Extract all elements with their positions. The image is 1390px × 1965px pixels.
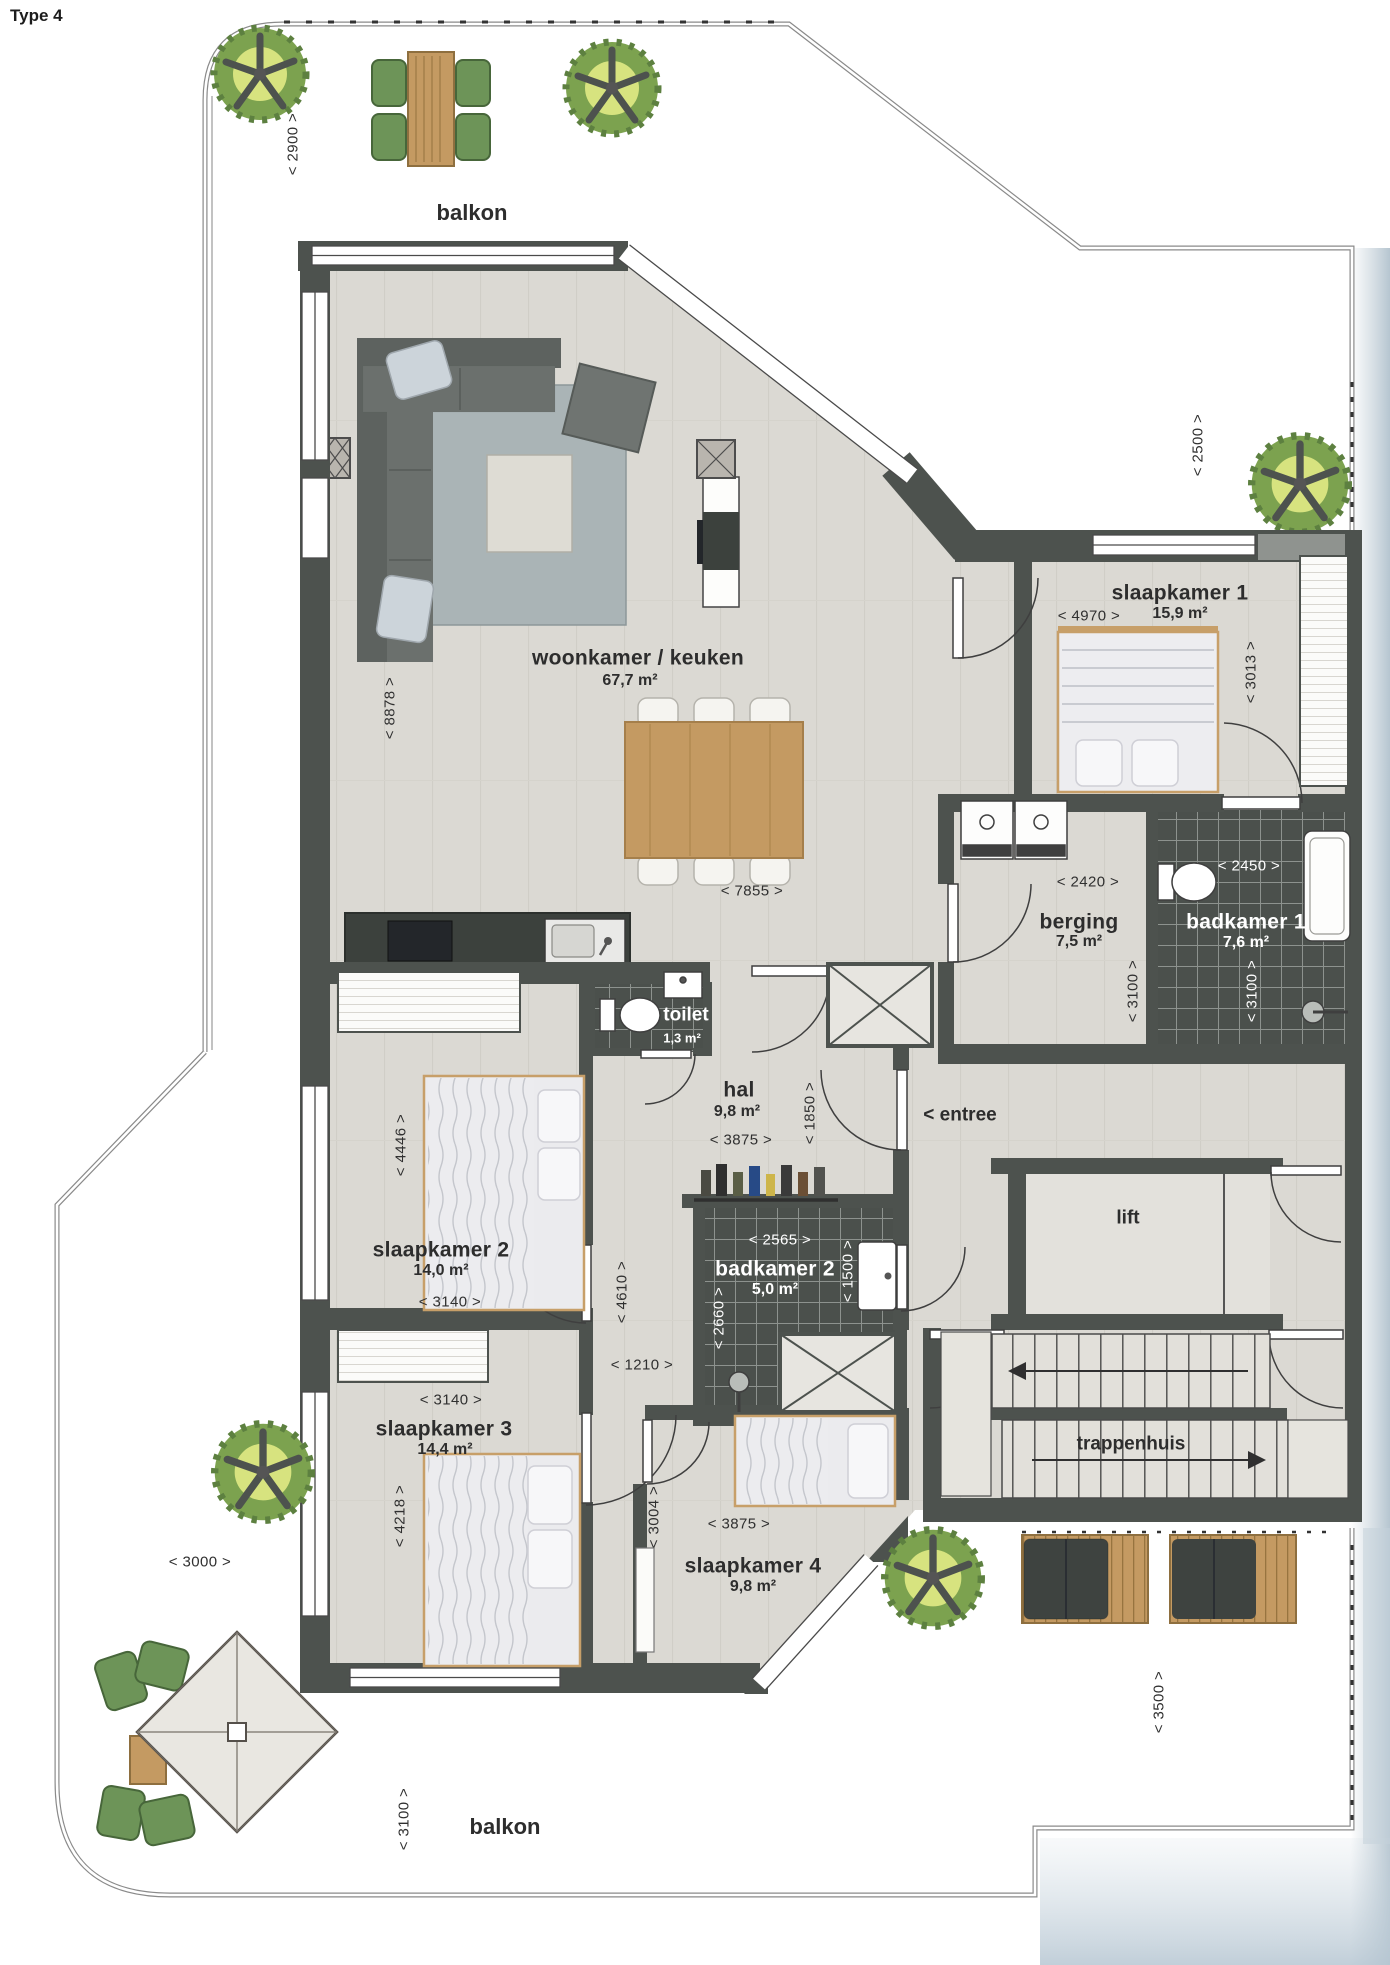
room-label-berging: berging <box>1039 912 1118 933</box>
room-label-slaapkamer2: slaapkamer 2 <box>373 1240 510 1261</box>
dim-slaapkamer1-depth: < 3013 > <box>1244 641 1259 703</box>
area-badkamer2: 5,0 m² <box>752 1282 798 1298</box>
entree-label: < entree <box>923 1106 996 1125</box>
trappenhuis-label: trappenhuis <box>1077 1435 1186 1454</box>
wardrobe-slaapkamer4 <box>636 1548 654 1652</box>
lift-label: lift <box>1116 1209 1139 1228</box>
dim-slaapkamer2-width: < 3140 > <box>419 1295 481 1310</box>
balcony-table-set <box>372 52 490 166</box>
room-label-slaapkamer4: slaapkamer 4 <box>685 1556 822 1577</box>
dim-balcony-bottom-depth: < 3100 > <box>397 1788 412 1850</box>
tree-icon <box>566 42 658 134</box>
dim-slaapkamer4-width: < 3875 > <box>708 1517 770 1532</box>
bed-slaapkamer1 <box>1058 626 1218 792</box>
wardrobe-slaapkamer3 <box>338 1330 488 1382</box>
bed-slaapkamer4 <box>735 1416 895 1506</box>
dim-hal-width: < 3875 > <box>710 1133 772 1148</box>
dim-slaapkamer1-width: < 4970 > <box>1058 609 1120 624</box>
tree-icon <box>215 1424 312 1521</box>
dim-balcony-bottom-width: < 3000 > <box>169 1555 231 1570</box>
room-label-toilet: toilet <box>663 1006 708 1025</box>
dim-slaapkamer3-depth: < 4218 > <box>393 1485 408 1547</box>
sun-lounger <box>1022 1535 1148 1623</box>
wardrobe-slaapkamer2 <box>338 972 520 1032</box>
room-label-badkamer1: badkamer 1 <box>1186 912 1306 933</box>
area-slaapkamer3: 14,4 m² <box>417 1442 472 1458</box>
dim-balcony-top: < 2900 > <box>286 113 301 175</box>
area-badkamer1: 7,6 m² <box>1223 935 1269 951</box>
area-woonkamer: 67,7 m² <box>602 673 657 689</box>
dim-balcony-right-lower: < 3500 > <box>1152 1671 1167 1733</box>
dim-woonkamer-depth: < 8878 > <box>383 677 398 739</box>
room-label-badkamer2: badkamer 2 <box>715 1259 835 1280</box>
area-slaapkamer2: 14,0 m² <box>413 1263 468 1279</box>
area-berging: 7,5 m² <box>1056 934 1102 950</box>
dim-slaapkamer2-depth: < 4446 > <box>394 1114 409 1176</box>
dim-badkamer1-depth: < 3100 > <box>1245 960 1260 1022</box>
floorplan-page: Type 4 balkon < 2900 > < 2500 > woonkame… <box>0 0 1390 1965</box>
room-label-woonkamer: woonkamer / keuken <box>532 648 744 669</box>
dim-slaapkamer3-width: < 3140 > <box>420 1393 482 1408</box>
dim-woonkamer-width: < 7855 > <box>721 884 783 899</box>
dim-balcony-right: < 2500 > <box>1191 414 1206 476</box>
dim-badkamer1-width: < 2450 > <box>1218 859 1280 874</box>
dim-badkamer2-depth: < 2660 > <box>712 1287 727 1349</box>
room-label-hal: hal <box>723 1080 754 1101</box>
wardrobe-slaapkamer1 <box>1300 556 1348 786</box>
tree-icon <box>214 28 306 120</box>
balkon-top-label: balkon <box>437 202 508 224</box>
area-slaapkamer1: 15,9 m² <box>1152 606 1207 622</box>
room-label-slaapkamer3: slaapkamer 3 <box>376 1419 513 1440</box>
dim-corridor-depth: < 4610 > <box>615 1261 630 1323</box>
dim-hal-depth: < 1850 > <box>803 1082 818 1144</box>
dim-slaapkamer4-depth: < 3004 > <box>647 1486 662 1548</box>
area-toilet: 1,3 m² <box>663 1032 701 1045</box>
floorplan-drawing <box>0 0 1390 1965</box>
tree-icon <box>885 1530 982 1627</box>
kitchen-counter <box>345 913 630 967</box>
bed-slaapkamer3 <box>424 1454 580 1666</box>
room-label-slaapkamer1: slaapkamer 1 <box>1112 583 1249 604</box>
area-slaapkamer4: 9,8 m² <box>730 1579 776 1595</box>
dim-berging-depth: < 3100 > <box>1126 960 1141 1022</box>
dim-berging-width: < 2420 > <box>1057 875 1119 890</box>
tree-icon <box>1252 436 1349 533</box>
sun-lounger <box>1170 1535 1296 1623</box>
shaft-hal <box>828 964 932 1046</box>
plan-title: Type 4 <box>10 6 63 26</box>
lift-shaft <box>1026 1174 1270 1314</box>
area-hal: 9,8 m² <box>714 1104 760 1120</box>
dim-badkamer2-width: < 2565 > <box>749 1233 811 1248</box>
dim-badkamer2-nook: < 1500 > <box>841 1240 856 1302</box>
dim-corridor-width: < 1210 > <box>611 1358 673 1373</box>
balkon-bottom-label: balkon <box>470 1816 541 1838</box>
